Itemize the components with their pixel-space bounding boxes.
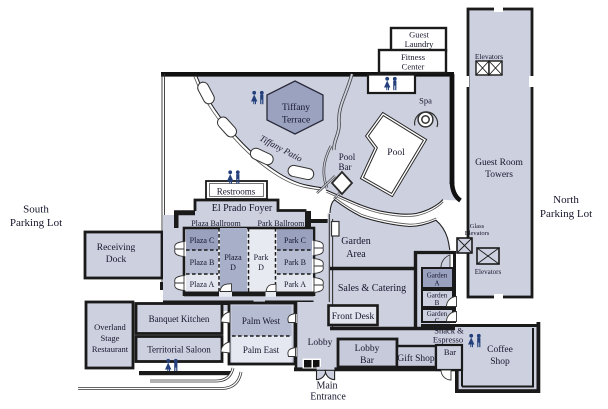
svg-text:A: A: [434, 280, 439, 288]
svg-text:Plaza C: Plaza C: [190, 236, 215, 245]
svg-text:Plaza: Plaza: [224, 253, 242, 262]
svg-text:Center: Center: [402, 62, 425, 72]
svg-text:South: South: [23, 204, 49, 216]
svg-text:Tiffany: Tiffany: [282, 102, 310, 113]
svg-text:Spa: Spa: [419, 96, 432, 106]
svg-text:Glass: Glass: [470, 223, 485, 230]
svg-text:Bar: Bar: [360, 356, 375, 366]
svg-text:Elevators: Elevators: [475, 52, 503, 61]
svg-text:Guest Room: Guest Room: [475, 158, 523, 168]
svg-text:Territorial Saloon: Territorial Saloon: [147, 345, 211, 355]
svg-text:Banquet Kitchen: Banquet Kitchen: [149, 314, 210, 324]
svg-text:Receiving: Receiving: [97, 243, 136, 253]
svg-text:Overland: Overland: [94, 322, 126, 332]
svg-text:Palm West: Palm West: [242, 316, 281, 326]
svg-text:Plaza Ballroom: Plaza Ballroom: [191, 219, 241, 228]
svg-text:Elevators: Elevators: [475, 268, 502, 276]
svg-text:Garden: Garden: [427, 272, 448, 280]
svg-text:Parking Lot: Parking Lot: [540, 208, 592, 220]
svg-text:Park C: Park C: [284, 236, 306, 245]
svg-text:Laundry: Laundry: [405, 39, 435, 49]
svg-text:Parking Lot: Parking Lot: [10, 217, 62, 229]
svg-text:Fitness: Fitness: [401, 52, 425, 62]
svg-text:B: B: [435, 299, 440, 307]
svg-text:D: D: [230, 263, 236, 272]
svg-text:Area: Area: [346, 249, 366, 260]
svg-text:Espresso: Espresso: [433, 335, 463, 345]
svg-text:Pool: Pool: [387, 148, 405, 158]
svg-text:Stage: Stage: [101, 333, 120, 343]
svg-text:Lobby: Lobby: [355, 344, 380, 354]
svg-text:Garden: Garden: [341, 236, 370, 247]
svg-text:Towers: Towers: [485, 170, 513, 180]
svg-text:Entrance: Entrance: [310, 392, 346, 403]
svg-text:Plaza A: Plaza A: [190, 280, 215, 289]
svg-text:Restaurant: Restaurant: [92, 344, 129, 354]
svg-text:Park B: Park B: [284, 258, 306, 267]
svg-text:Bar: Bar: [339, 162, 352, 172]
svg-text:C: C: [435, 317, 440, 325]
svg-text:Coffee: Coffee: [487, 344, 513, 355]
svg-text:North: North: [553, 194, 579, 206]
svg-text:Elevators: Elevators: [465, 230, 490, 237]
svg-text:Terrace: Terrace: [282, 116, 310, 126]
svg-text:Dock: Dock: [106, 255, 127, 265]
svg-text:Main: Main: [316, 381, 337, 392]
svg-text:Lobby: Lobby: [308, 338, 333, 348]
svg-text:Plaza B: Plaza B: [190, 258, 215, 267]
svg-text:Front Desk: Front Desk: [332, 312, 375, 322]
svg-text:Bar: Bar: [444, 347, 456, 357]
svg-text:Shop: Shop: [490, 357, 510, 367]
svg-text:El Prado Foyer: El Prado Foyer: [212, 203, 273, 214]
svg-text:Restrooms: Restrooms: [217, 187, 256, 197]
svg-text:Gift Shop: Gift Shop: [397, 353, 434, 364]
svg-text:Palm East: Palm East: [243, 345, 280, 355]
svg-text:Guest: Guest: [409, 30, 429, 40]
svg-text:Park Ballroom: Park Ballroom: [258, 219, 306, 228]
svg-text:Sales & Catering: Sales & Catering: [338, 283, 406, 294]
svg-text:Pool: Pool: [339, 152, 356, 162]
svg-text:Park: Park: [254, 253, 269, 262]
svg-text:D: D: [258, 263, 264, 272]
svg-text:Park A: Park A: [284, 280, 306, 289]
